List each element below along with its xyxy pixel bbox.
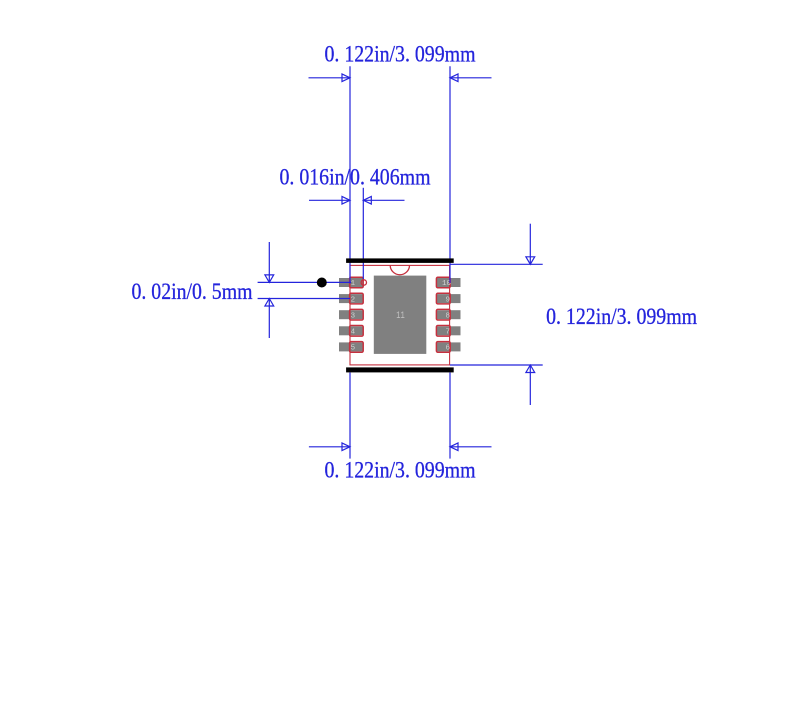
svg-text:0. 016in/0. 406mm: 0. 016in/0. 406mm <box>280 165 431 190</box>
svg-text:6: 6 <box>445 345 450 353</box>
svg-text:1: 1 <box>351 280 356 288</box>
svg-text:4: 4 <box>351 329 356 337</box>
svg-text:11: 11 <box>396 311 405 322</box>
svg-text:5: 5 <box>351 345 356 353</box>
svg-text:3: 3 <box>351 312 356 320</box>
svg-text:9: 9 <box>445 296 450 304</box>
svg-text:0. 02in/0. 5mm: 0. 02in/0. 5mm <box>132 279 253 304</box>
svg-text:8: 8 <box>445 312 450 320</box>
svg-text:0. 122in/3. 099mm: 0. 122in/3. 099mm <box>325 42 476 67</box>
svg-text:0. 122in/3. 099mm: 0. 122in/3. 099mm <box>325 457 476 482</box>
svg-text:2: 2 <box>351 296 356 304</box>
svg-text:0. 122in/3. 099mm: 0. 122in/3. 099mm <box>546 304 697 329</box>
svg-text:7: 7 <box>445 329 450 337</box>
